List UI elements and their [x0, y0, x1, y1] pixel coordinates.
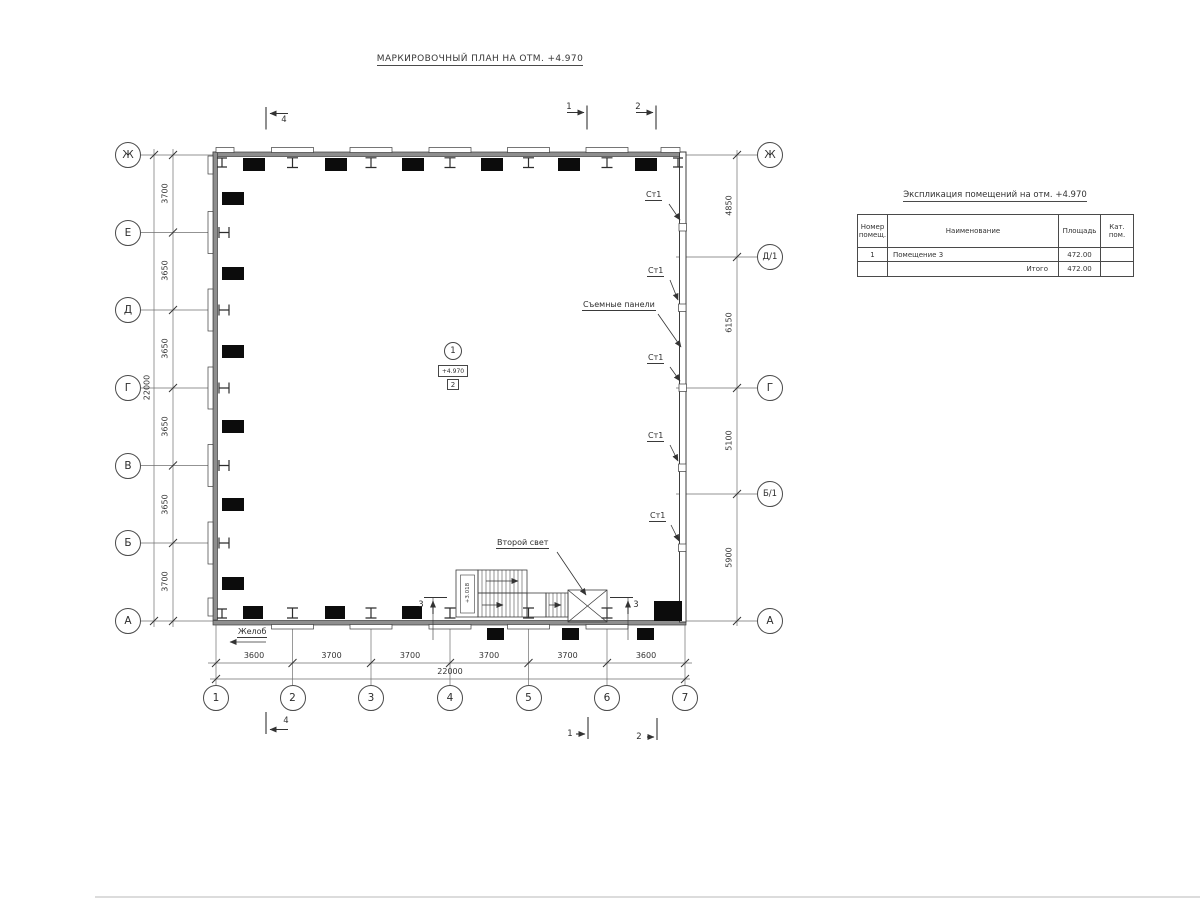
dim-left-6: 3700 — [161, 552, 170, 612]
axis-circle-left-v: В — [115, 453, 141, 479]
section-mark-3-right: 3 — [630, 600, 642, 610]
col-header-number: Номер помещ. — [858, 215, 888, 248]
table-title-text: Экспликация помещений на отм. +4.970 — [903, 190, 1087, 202]
removable-panels-label: Съемные панели — [582, 300, 656, 311]
axis-circle-4: 4 — [437, 685, 463, 711]
table: Номер помещ. Наименование Площадь Кат. п… — [857, 214, 1134, 277]
dim-left-total: 22000 — [143, 358, 152, 418]
cell-total-empty — [858, 262, 888, 277]
cell-room-name: Помещение 3 — [888, 248, 1059, 262]
col-header-name: Наименование — [888, 215, 1059, 248]
col-header-category-line2: пом. — [1101, 231, 1133, 239]
axis-circle-left-a: А — [115, 608, 141, 634]
dim-bottom-5: 3700 — [538, 651, 598, 660]
room-elevation-marker: +4.970 — [438, 365, 468, 377]
axis-circle-left-g: Г — [115, 375, 141, 401]
page-edge — [95, 896, 1200, 898]
dim-bottom-3: 3700 — [380, 651, 440, 660]
dim-left-1: 3700 — [161, 163, 170, 223]
axis-circle-right-g: Г — [757, 375, 783, 401]
col-header-number-line2: помещ. — [858, 231, 887, 239]
panel-mark-st1-2: Ст1 — [647, 266, 664, 277]
dim-bottom-2: 3700 — [302, 651, 362, 660]
cell-total-category — [1101, 262, 1134, 277]
room-type-marker: 2 — [447, 379, 459, 390]
drawing-title-text: МАРКИРОВОЧНЫЙ ПЛАН НА ОТМ. +4.970 — [377, 54, 583, 66]
gutter-label: Желоб — [237, 627, 267, 638]
axis-circle-3: 3 — [358, 685, 384, 711]
axis-circle-left-e: Е — [115, 220, 141, 246]
axis-circle-5: 5 — [516, 685, 542, 711]
dim-left-2: 3650 — [161, 241, 170, 301]
room-explication-table: Номер помещ. Наименование Площадь Кат. п… — [857, 214, 1134, 277]
room-number-marker: 1 — [444, 342, 462, 360]
panel-mark-st1-5: Ст1 — [649, 511, 666, 522]
cell-total-label: Итого — [888, 262, 1059, 277]
section-mark-4-top: 4 — [278, 115, 290, 125]
dim-bottom-6: 3600 — [616, 651, 676, 660]
stair-landing-elevation: +3.018 — [465, 573, 471, 613]
plan-linework — [0, 0, 1200, 900]
table-row: 1 Помещение 3 472.00 — [858, 248, 1134, 262]
panel-mark-st1-1: Ст1 — [645, 190, 662, 201]
axis-circle-6: 6 — [594, 685, 620, 711]
dim-left-5: 3650 — [161, 474, 170, 534]
drawing-title: МАРКИРОВОЧНЫЙ ПЛАН НА ОТМ. +4.970 — [330, 54, 630, 64]
dim-right-2: 6150 — [725, 292, 734, 352]
section-mark-2-bottom: 2 — [633, 732, 645, 742]
section-mark-2-top: 2 — [632, 102, 644, 112]
cell-total-area: 472.00 — [1059, 262, 1101, 277]
panel-mark-st1-4: Ст1 — [647, 431, 664, 442]
axis-circle-right-a: А — [757, 608, 783, 634]
col-header-area: Площадь — [1059, 215, 1101, 248]
panel-mark-st1-3: Ст1 — [647, 353, 664, 364]
axis-circle-left-d: Д — [115, 297, 141, 323]
section-mark-1-bottom: 1 — [564, 729, 576, 739]
table-total-row: Итого 472.00 — [858, 262, 1134, 277]
axis-circle-left-zh: Ж — [115, 142, 141, 168]
axis-circle-right-zh: Ж — [757, 142, 783, 168]
cell-room-number: 1 — [858, 248, 888, 262]
section-mark-1-top: 1 — [563, 102, 575, 112]
second-light-label: Второй свет — [496, 538, 549, 549]
dim-bottom-total: 22000 — [420, 667, 480, 676]
dim-right-4: 5900 — [725, 527, 734, 587]
table-header-row: Номер помещ. Наименование Площадь Кат. п… — [858, 215, 1134, 248]
section-mark-4-bottom: 4 — [280, 716, 292, 726]
dim-left-4: 3650 — [161, 397, 170, 457]
drawing-sheet: МАРКИРОВОЧНЫЙ ПЛАН НА ОТМ. +4.970 Ж Е Д … — [0, 0, 1200, 900]
axis-circle-right-b1: Б/1 — [757, 481, 783, 507]
dim-bottom-4: 3700 — [459, 651, 519, 660]
dim-right-1: 4850 — [725, 176, 734, 236]
axis-circle-left-b: Б — [115, 530, 141, 556]
section-mark-3-left: 3 — [415, 600, 427, 610]
dim-bottom-1: 3600 — [224, 651, 284, 660]
table-title: Экспликация помещений на отм. +4.970 — [850, 190, 1140, 200]
col-header-category-line1: Кат. — [1101, 223, 1133, 231]
cell-room-category — [1101, 248, 1134, 262]
axis-circle-7: 7 — [672, 685, 698, 711]
dim-left-3: 3650 — [161, 319, 170, 379]
col-header-category: Кат. пом. — [1101, 215, 1134, 248]
dim-right-3: 5100 — [725, 411, 734, 471]
axis-circle-2: 2 — [280, 685, 306, 711]
cell-room-area: 472.00 — [1059, 248, 1101, 262]
axis-circle-1: 1 — [203, 685, 229, 711]
col-header-number-line1: Номер — [858, 223, 887, 231]
axis-circle-right-d1: Д/1 — [757, 244, 783, 270]
